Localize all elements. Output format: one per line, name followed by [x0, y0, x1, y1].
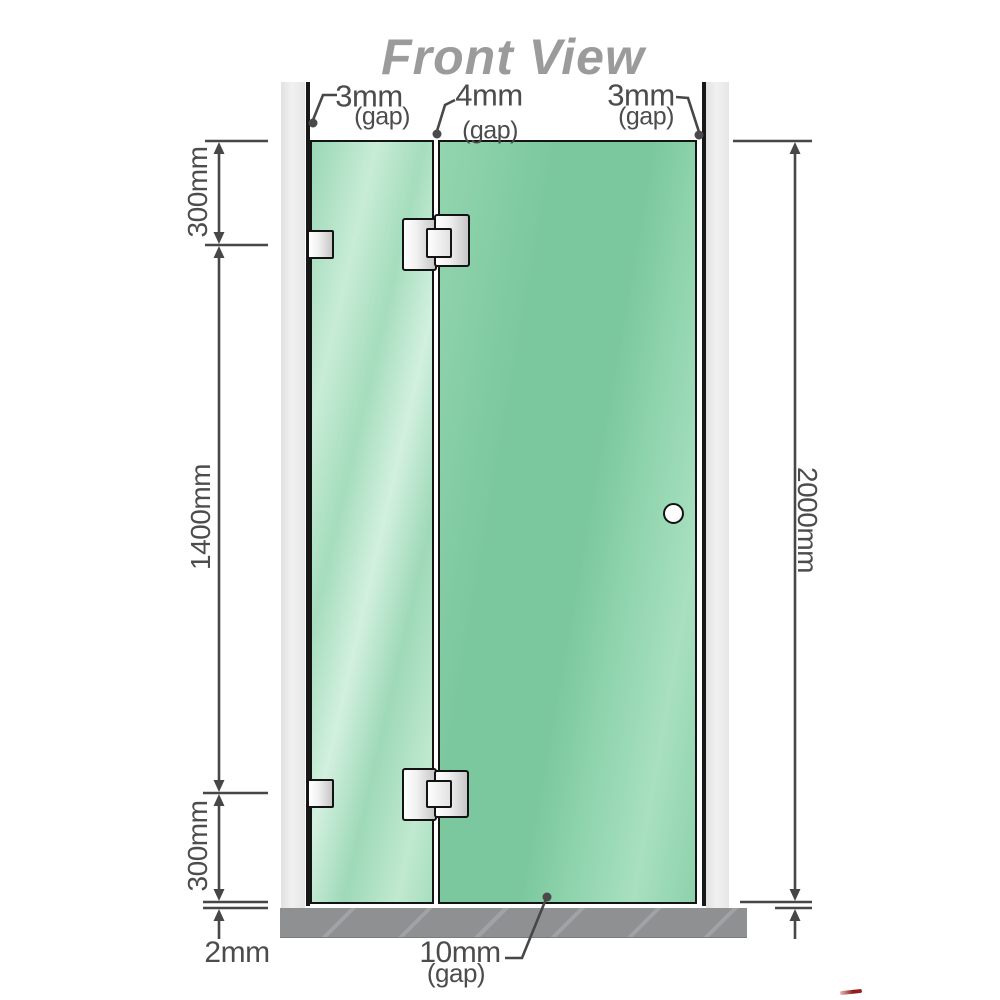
door-knob: [663, 503, 684, 524]
hinge-top-tongue: [426, 228, 452, 258]
gap-label-top-right-suffix: (gap): [618, 105, 674, 130]
right-wall-channel-line: [702, 82, 706, 906]
dimension-label-300mm-bottom: 300mm: [184, 801, 212, 892]
dimension-label-2000mm: 2000mm: [793, 467, 821, 573]
right-wall-post: [706, 82, 729, 908]
front-view-diagram: Front View: [0, 0, 1000, 1000]
gap-label-top-middle-value: 4mm: [455, 80, 522, 111]
watermark-red-sliver: [840, 989, 862, 995]
dimension-label-1400mm: 1400mm: [187, 464, 215, 570]
gap-label-top-left-suffix: (gap): [354, 105, 410, 130]
left-wall-post: [281, 82, 305, 908]
gap-label-top-middle-suffix: (gap): [462, 119, 518, 144]
wall-bracket-top: [307, 230, 334, 259]
dimension-label-300mm-top: 300mm: [184, 147, 212, 238]
dimension-label-2mm: 2mm: [204, 938, 269, 968]
floor-base: [280, 908, 747, 938]
hinge-bottom-tongue: [426, 780, 452, 808]
wall-bracket-bottom: [307, 779, 334, 808]
gap-label-bottom-suffix: (gap): [427, 960, 485, 986]
glass-panel-door: [438, 140, 697, 904]
